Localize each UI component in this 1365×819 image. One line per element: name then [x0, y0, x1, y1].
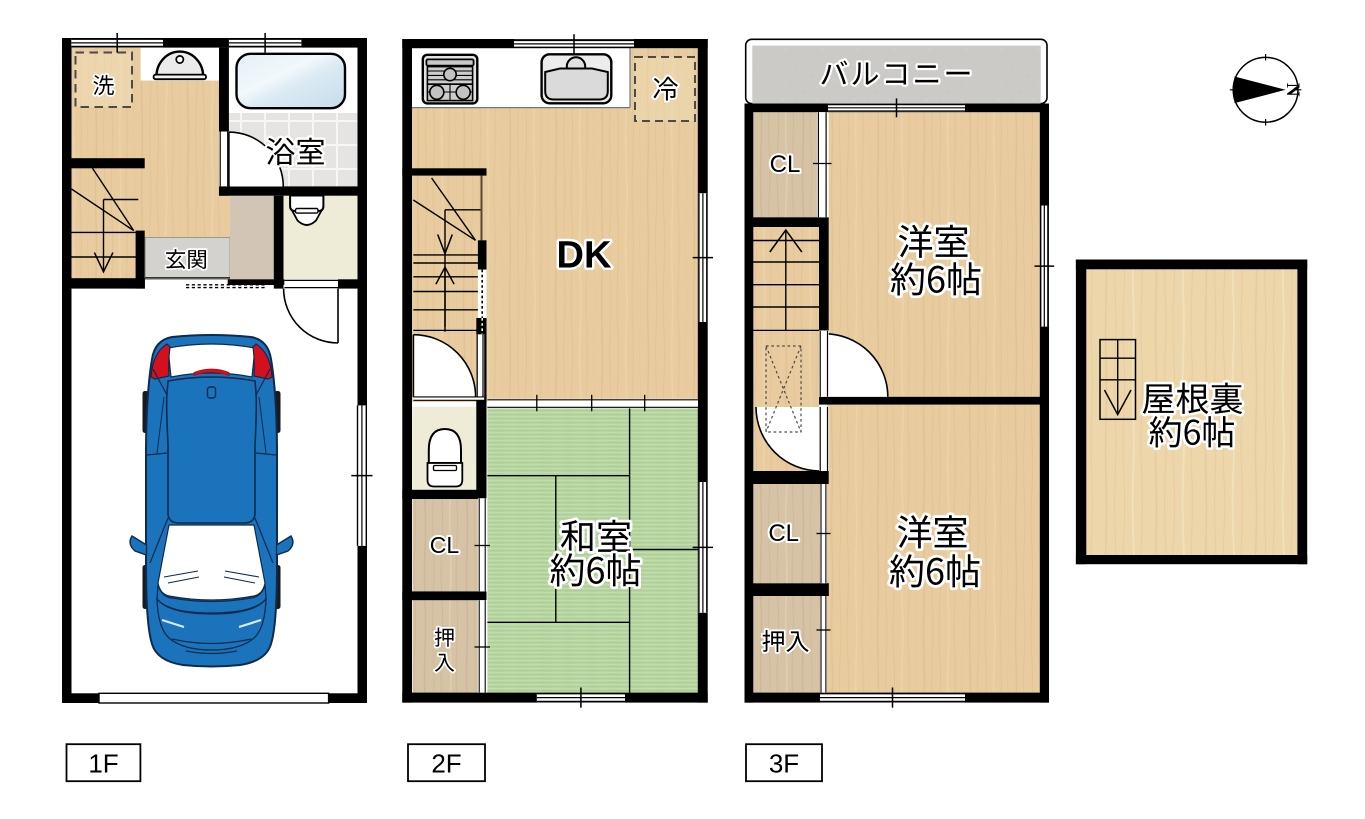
svg-text:1F: 1F: [88, 749, 118, 779]
svg-text:CL: CL: [430, 532, 460, 558]
svg-text:CL: CL: [770, 151, 801, 178]
svg-text:DK: DK: [557, 235, 612, 277]
svg-text:N: N: [1282, 83, 1303, 97]
svg-text:CL: CL: [768, 520, 799, 547]
svg-text:2F: 2F: [431, 749, 461, 779]
svg-text:3F: 3F: [769, 749, 799, 779]
